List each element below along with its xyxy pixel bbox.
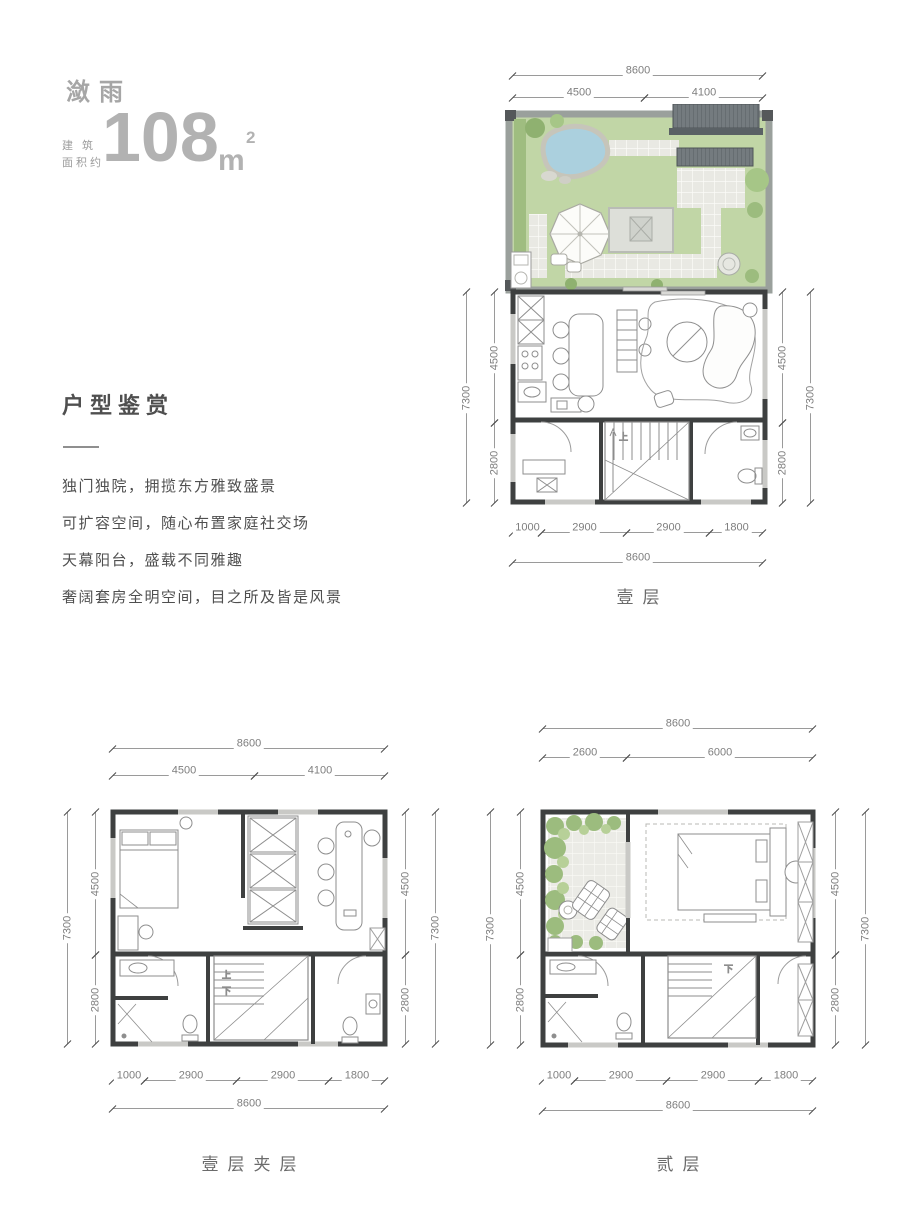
dim-label: 4500 [515, 868, 528, 898]
dim-floor1-top-total: 8600 [513, 75, 763, 76]
wall-closet [370, 928, 385, 950]
entry-court [677, 168, 745, 208]
tree [525, 118, 545, 138]
dim-mezz-top-right: 4100 [255, 775, 385, 776]
dim-floor2-bottom-4: 1800 [759, 1080, 813, 1081]
area-value: 108 [102, 102, 219, 172]
feature-line: 可扩容空间，随心布置家庭社交场 [62, 512, 310, 533]
area-unit: m [218, 144, 245, 178]
dim-floor2-left-lower: 2800 [520, 955, 521, 1045]
area-caption-line2: 面积约 [62, 157, 104, 169]
area-caption-line1: 建 筑 [62, 140, 96, 152]
dim-floor1-bottom-1: 1000 [513, 532, 542, 533]
dim-label: 1800 [342, 1069, 372, 1082]
dim-mezz-bottom-1: 1000 [113, 1080, 145, 1081]
stair-direction-label: 下 [222, 986, 231, 996]
dim-mezz-bottom-2: 2900 [145, 1080, 237, 1081]
dim-floor2-right-upper: 4500 [835, 812, 836, 955]
dim-label: 7300 [485, 913, 498, 943]
dim-label: 8600 [663, 717, 693, 730]
section-title: 户型鉴赏 [62, 388, 174, 420]
dim-floor2-left-total: 7300 [490, 812, 491, 1045]
area-exponent: 2 [246, 128, 255, 148]
dim-label: 1000 [544, 1069, 574, 1082]
dim-label: 7300 [62, 913, 75, 943]
dim-label: 8600 [623, 551, 653, 564]
dim-label: 7300 [461, 382, 474, 412]
dim-label: 2800 [777, 448, 790, 478]
closet [248, 816, 298, 924]
round-feature [718, 253, 740, 275]
bed-bench [704, 914, 756, 922]
dim-label: 2900 [268, 1069, 298, 1082]
dim-label: 4500 [489, 342, 502, 372]
area-caption: 建 筑面积约 [62, 138, 104, 172]
mezzanine-structure: 上 下 [113, 812, 385, 1044]
feature-line: 奢阔套房全明空间，目之所及皆是风景 [62, 586, 343, 607]
dim-mezz-right-lower: 2800 [405, 955, 406, 1044]
wardrobe [798, 822, 813, 942]
dim-label: 2900 [569, 521, 599, 534]
lamp [180, 817, 192, 829]
dim-label: 6000 [705, 746, 735, 759]
dim-mezz-left-total: 7300 [67, 812, 68, 1044]
dim-label: 4500 [830, 868, 843, 898]
dim-label: 2900 [176, 1069, 206, 1082]
dim-label: 4500 [169, 764, 199, 777]
stairs: 下 [668, 956, 756, 1038]
dim-label: 4500 [90, 868, 103, 898]
plan-name-mezzanine: 壹层夹层 [193, 1150, 306, 1175]
dim-label: 8600 [623, 64, 653, 77]
stairs: 上 下 [214, 956, 308, 1040]
dim-label: 2900 [698, 1069, 728, 1082]
dim-label: 2800 [90, 984, 103, 1014]
dim-label: 2600 [570, 746, 600, 759]
dim-floor2-top-right: 6000 [627, 757, 813, 758]
floorplan-sheet: 潋雨 建 筑面积约 108 m 2 户型鉴赏 独门独院，拥揽东方雅致盛景 可扩容… [0, 0, 912, 1229]
tree [550, 114, 564, 128]
dim-mezz-right-total: 7300 [435, 812, 436, 1044]
stair-direction-label: 上 [619, 432, 628, 442]
feature-line: 天幕阳台，盛载不同雅趣 [62, 549, 244, 570]
garden-chair [567, 262, 581, 272]
dim-mezz-left-lower: 2800 [95, 955, 96, 1044]
plan-floor1-drawing: 上 [505, 104, 775, 508]
dim-label: 1000 [114, 1069, 144, 1082]
dim-floor2-right-lower: 2800 [835, 955, 836, 1045]
dim-label: 4100 [305, 764, 335, 777]
area-block: 建 筑面积约 108 m 2 [60, 110, 290, 190]
dim-label: 2800 [400, 984, 413, 1014]
dim-label: 4500 [564, 86, 594, 99]
garden-platform [609, 208, 673, 252]
dim-floor2-bottom-3: 2900 [667, 1080, 759, 1081]
chair [139, 925, 153, 939]
feature-line: 独门独院，拥揽东方雅致盛景 [62, 475, 277, 496]
dim-label: 4500 [777, 342, 790, 372]
dim-floor2-top-left: 2600 [543, 757, 627, 758]
garden-path [609, 140, 679, 156]
dresser [118, 916, 138, 950]
plan-mezzanine-drawing: 上 下 [98, 798, 402, 1066]
garden [505, 104, 773, 291]
dim-mezz-bottom-4: 1800 [329, 1080, 385, 1081]
dim-mezz-right-upper: 4500 [405, 812, 406, 955]
stairs: 上 [605, 422, 689, 500]
entrance-roof [669, 104, 763, 166]
dim-label: 7300 [805, 382, 818, 412]
bush [565, 278, 577, 290]
rock [559, 176, 571, 184]
stair-direction-label: 下 [724, 964, 733, 974]
dim-label: 8600 [234, 1097, 264, 1110]
rock [541, 171, 557, 181]
dim-mezz-bottom-total: 8600 [113, 1108, 385, 1109]
outdoor-cabinet [511, 252, 531, 288]
dim-floor1-bottom-2: 2900 [542, 532, 627, 533]
dim-label: 4100 [689, 86, 719, 99]
dim-label: 8600 [663, 1099, 693, 1112]
plan-name-floor2: 贰层 [648, 1150, 709, 1175]
dim-floor1-bottom-3: 2900 [627, 532, 710, 533]
dim-floor1-right-upper: 4500 [782, 292, 783, 423]
stair-direction-label: 上 [222, 970, 231, 980]
dim-label: 1000 [512, 521, 542, 534]
dim-floor1-left-total: 7300 [466, 292, 467, 503]
dim-label: 2800 [489, 448, 502, 478]
tree [747, 202, 763, 218]
headboard-console [770, 828, 786, 916]
dim-floor2-right-total: 7300 [865, 812, 866, 1045]
dim-mezz-top-left: 4500 [113, 775, 255, 776]
dim-floor1-bottom-total: 8600 [513, 562, 763, 563]
dim-floor1-top-left: 4500 [513, 97, 645, 98]
dim-floor1-right-total: 7300 [810, 292, 811, 503]
dim-mezz-left-upper: 4500 [95, 812, 96, 955]
garden-chair [551, 254, 567, 265]
dim-floor1-left-upper: 4500 [494, 292, 495, 423]
dim-floor2-left-upper: 4500 [520, 812, 521, 955]
dim-label: 1800 [771, 1069, 801, 1082]
dim-mezz-top-total: 8600 [113, 748, 385, 749]
pond [543, 126, 608, 176]
planter-box [548, 938, 572, 952]
dim-label: 4500 [400, 868, 413, 898]
side-table [743, 303, 757, 317]
dim-floor2-top-total: 8600 [543, 728, 813, 729]
tree [745, 168, 769, 192]
closet [798, 964, 813, 1036]
dim-mezz-bottom-3: 2900 [237, 1080, 329, 1081]
dim-label: 2800 [515, 985, 528, 1015]
dim-label: 7300 [430, 913, 443, 943]
dim-label: 1800 [721, 521, 751, 534]
plan-name-floor1: 壹层 [608, 583, 669, 608]
dim-floor1-left-lower: 2800 [494, 423, 495, 503]
plan-floor2-drawing: 下 [528, 798, 868, 1066]
dim-floor2-bottom-2: 2900 [575, 1080, 667, 1081]
dim-label: 2900 [606, 1069, 636, 1082]
dim-floor1-bottom-4: 1800 [710, 532, 763, 533]
floor1-indoor: 上 [513, 287, 765, 502]
dim-label: 8600 [234, 737, 264, 750]
garden-path [529, 214, 547, 278]
dim-label: 2900 [653, 521, 683, 534]
dim-floor1-right-lower: 2800 [782, 423, 783, 503]
floor2-structure: 下 [543, 812, 813, 1045]
terrace [544, 813, 629, 952]
dim-label: 7300 [860, 913, 873, 943]
dim-label: 2800 [830, 985, 843, 1015]
dim-floor2-bottom-total: 8600 [543, 1110, 813, 1111]
section-divider [63, 446, 99, 448]
dim-floor1-top-right: 4100 [645, 97, 763, 98]
tree [745, 269, 759, 283]
dim-floor2-bottom-1: 1000 [543, 1080, 575, 1081]
